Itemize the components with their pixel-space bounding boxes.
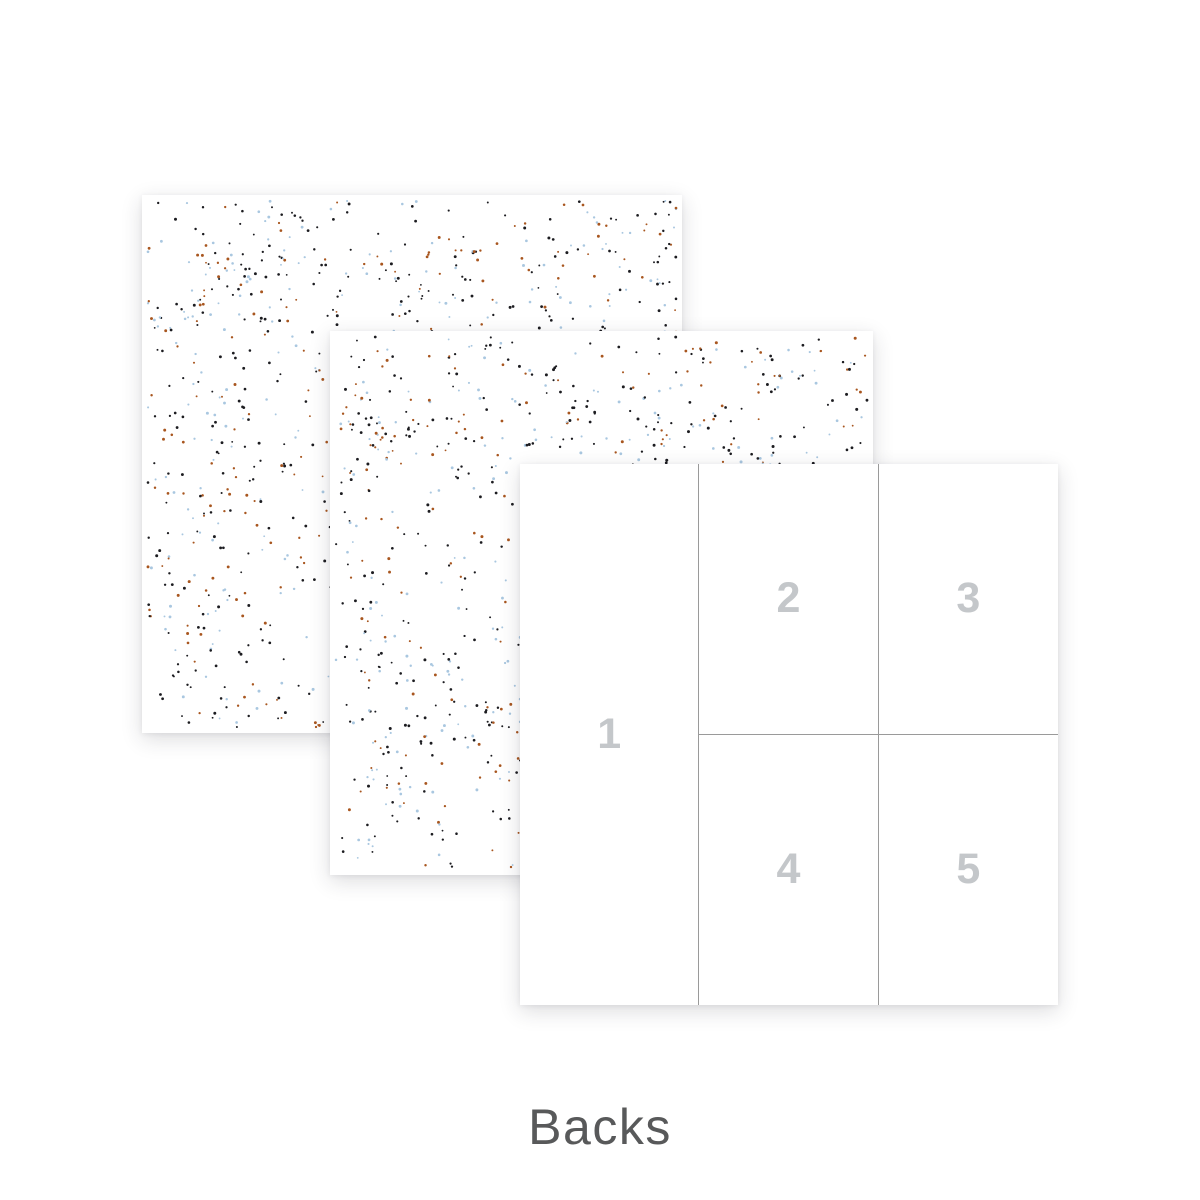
cell-number-label: 4	[777, 848, 801, 891]
grid-cell-2: 2	[699, 464, 878, 735]
numbered-grid-paper: 1 2 3 4 5	[520, 464, 1058, 1005]
product-preview-stage: 1 2 3 4 5 Backs	[0, 0, 1200, 1200]
grid-cell-4: 4	[699, 735, 878, 1006]
cell-number-label: 3	[956, 577, 980, 620]
grid-cell-3: 3	[879, 464, 1058, 735]
cell-number-label: 5	[956, 848, 980, 891]
grid-cell-1: 1	[520, 464, 699, 1005]
side-caption: Backs	[0, 1098, 1200, 1156]
grid-cell-5: 5	[879, 735, 1058, 1006]
cell-number-label: 2	[777, 577, 801, 620]
cell-number-label: 1	[597, 713, 621, 756]
